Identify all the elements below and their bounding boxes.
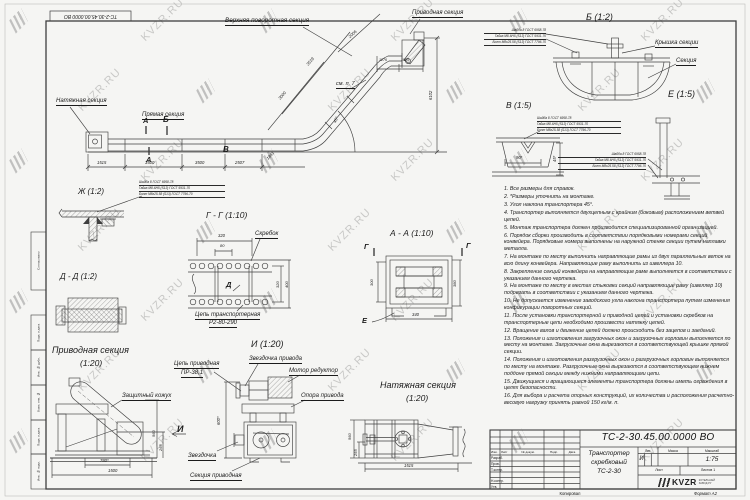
stamp-text: ТС-2-30.45.00.0000 ВО	[64, 13, 117, 19]
dim-1505: 1505	[401, 59, 409, 63]
copied-label: Копировал	[540, 491, 600, 496]
title-block-lit-header: Лит.	[638, 449, 658, 453]
label-drive-chain-2: ПР-38,1	[181, 370, 203, 378]
dim-drive-560: 560	[152, 430, 156, 437]
title-block-role-razrab: Разраб.	[491, 456, 503, 460]
margin-label-inv-dubl: Инв. № дубл.	[31, 350, 46, 385]
label-drive-support: Опора привода	[301, 393, 344, 401]
marker-g-left: Г	[364, 243, 369, 251]
marker-e: Е	[362, 317, 367, 325]
dim-6102: 6102	[429, 91, 433, 100]
note-item: 2. *Размеры уточнить на монтаже.	[504, 194, 735, 201]
dim-1500: 1500	[108, 469, 117, 473]
view-title-zh: Ж (1:2)	[78, 188, 104, 196]
label-see-note-7: см. п. 7	[336, 82, 355, 89]
title-block-col-doc: № докум.	[512, 450, 544, 454]
note-item: 14. Положения и изготовления разгрузочны…	[504, 357, 735, 377]
dim-1515: 1515	[97, 161, 106, 165]
view-v-linework	[492, 131, 564, 176]
kvzr-logo-text: KVZR	[672, 477, 697, 487]
title-block-col-sign: Подп.	[544, 450, 564, 454]
view-title-gg: Г - Г (1:10)	[206, 211, 247, 220]
dim-aa-300: 300	[370, 279, 374, 286]
view-title-aa: А - А (1:10)	[390, 229, 433, 238]
note-item: 4. Транспортер выполняется двухцепным с …	[504, 210, 735, 224]
fastener-callout-v: Шайба 8 ГОСТ 6958-78 Гайка М8-6Н5 (S13) …	[537, 116, 621, 134]
dim-90: 90*	[516, 156, 522, 160]
note-item: 15. Движущиеся и вращающиеся элементы тр…	[504, 379, 735, 393]
note-item: 3. Угол наклона транспортера 45°.	[504, 202, 735, 209]
dim-tension-1515: 1515	[404, 464, 413, 468]
fastener-line: Болт М8х25.58 (S13) ГОСТ 7796-70	[537, 128, 621, 134]
note-item: 5. Монтаж транспортера должен производит…	[504, 225, 735, 232]
view-title-dd: Д - Д (1:2)	[60, 273, 97, 281]
dim-1276: 1276	[379, 59, 387, 63]
section-mark-a-top: А	[143, 117, 148, 125]
title-block-scale-value: 1:75	[688, 456, 736, 463]
dim-drive-265: 265	[159, 444, 163, 451]
dim-gg-400: 400	[285, 281, 289, 288]
dim-gg-80: 80	[220, 244, 224, 248]
title-block-lit-value: И	[637, 456, 646, 462]
format-label: Формат А2	[694, 491, 717, 496]
margin-label-vzam-inv: Взам. инв. №	[31, 385, 46, 420]
title-block-scale-header: Масштаб	[688, 449, 736, 453]
dim-aa-340: 340	[412, 313, 419, 317]
dim-gg-320-right: 320	[276, 281, 280, 288]
note-item: 10. Не допускается изменение заводского …	[504, 298, 735, 312]
note-item: 16. Для выбора и расчета опорных констру…	[504, 393, 735, 407]
note-item: 13. Положения и изготовления загрузочных…	[504, 336, 735, 356]
margin-label-podp-data-1: Подп. и дата	[31, 315, 46, 350]
note-item: 9. На монтаже по месту в местах стыковки…	[504, 283, 735, 297]
note-item: 1. Все размеры для справок.	[504, 186, 735, 193]
title-block-role-utv: Утв.	[491, 485, 497, 489]
title-block-role-tkontr: Т.контр.	[491, 468, 503, 472]
marker-d: Д	[226, 281, 231, 289]
title-block-sheet-label: Лист	[638, 468, 680, 472]
view-title-tension-section: Натяжная секция	[380, 381, 456, 390]
margin-label-inv-podl: Инв. № подл.	[31, 454, 46, 489]
dim-3500-1: 3500	[145, 161, 154, 165]
company-logo: KVZR КОТЕЛЬНЫЙ ЗАВОД.РУ	[640, 476, 734, 488]
title-block-role-nkontr: Н.контр.	[491, 479, 504, 483]
view-title-b: Б (1:2)	[586, 13, 613, 22]
fastener-line: Болт М8х25.58 (S13) ГОСТ 7796-70	[139, 192, 225, 198]
label-tension-section: Натяжная секция	[56, 98, 107, 106]
title-block-doc-number: ТС-2-30.45.00.0000 ВО	[581, 432, 735, 443]
label-sprocket: Звездочка	[188, 453, 216, 461]
dim-2507: 2507	[235, 161, 244, 165]
view-mark-i: И	[177, 425, 183, 434]
fastener-callout-b: Шайба 8 ГОСТ 6958-78 Гайка М8-6Н5 (S13) …	[484, 28, 546, 46]
rotated-doc-number-stamp: ТС-2-30.45.00.0000 ВО	[50, 11, 131, 21]
title-block-name-1: Транспортер	[580, 450, 638, 457]
main-assembly-linework	[70, 14, 447, 171]
title-block-mass-header: Масса	[658, 449, 688, 453]
kvzr-logo-subtext: КОТЕЛЬНЫЙ ЗАВОД.РУ	[699, 479, 715, 485]
dim-tension-560: 560	[348, 433, 352, 440]
dim-gg-320-top: 320	[218, 234, 225, 238]
view-title-e: Е (1:5)	[668, 90, 695, 99]
label-protective-guard: Защитный кожух	[122, 393, 171, 401]
dim-780: 780*	[100, 459, 109, 463]
label-drive-chain-1: Цепь приводная	[174, 361, 219, 369]
fastener-line: Болт М8х25.58 (S13) ГОСТ 7796-70	[558, 164, 646, 170]
dim-45: 45*	[553, 156, 557, 162]
kvzr-logo-subline-2: ЗАВОД.РУ	[699, 482, 715, 485]
label-section: Секция	[676, 58, 696, 66]
note-item: 7. На монтаже по месту выполнить направл…	[504, 254, 735, 268]
title-block-col-list: Лист	[501, 450, 508, 454]
title-block-sheets-label: Листов 1	[680, 468, 736, 472]
note-item: 8. Закрепление секций конвейера на напра…	[504, 269, 735, 283]
view-title-drive-scale: (1:20)	[80, 359, 102, 368]
title-block-col-date: Дата	[564, 450, 580, 454]
label-drive-sprocket: Звездочка привода	[249, 356, 302, 364]
label-drive-section: Приводная секция	[412, 10, 463, 18]
fastener-callout-zh: Шайба 8 ГОСТ 6958-78 Гайка М8-6Н5 (S13) …	[139, 180, 225, 198]
technical-notes: 1. Все размеры для справок. 2. *Размеры …	[504, 186, 735, 408]
title-block-col-izm: Изм.	[491, 450, 497, 454]
view-gg-linework	[188, 238, 291, 311]
kvzr-hatch-icon	[658, 478, 671, 487]
view-title-tension-scale: (1:20)	[406, 394, 428, 403]
title-block-role-prov: Пров.	[491, 462, 500, 466]
margin-label-podp-data-2: Подп. и дата	[31, 420, 46, 454]
dim-600: 600*	[217, 416, 221, 425]
dim-aa-380: 380	[453, 280, 457, 287]
view-dd-linework	[56, 298, 126, 332]
view-i-linework	[214, 364, 305, 471]
dim-tension-255: 255	[354, 449, 358, 456]
title-block-name-3: ТС-2-30	[580, 468, 638, 475]
view-title-drive-section: Приводная секция	[52, 346, 129, 355]
title-block-name-2: скребковый	[580, 459, 638, 466]
label-conveyor-chain-1: Цепь транспортерная	[195, 312, 260, 320]
view-mark-b: Б	[163, 116, 169, 124]
label-upper-turn-section: Верхняя поворотная секция	[225, 18, 309, 26]
view-title-i: И (1:20)	[251, 340, 283, 349]
fastener-line: Болт М8х25.58 (S13) ГОСТ 7796-70	[484, 40, 546, 46]
label-conveyor-chain-2: Р2-80-290	[209, 320, 237, 328]
marker-g-right: Г	[466, 242, 471, 250]
note-item: 12. Вращение валов и движение цепей долж…	[504, 328, 735, 335]
label-scraper: Скребок	[255, 231, 278, 239]
note-item: 11. После установки транспортерной и при…	[504, 313, 735, 327]
margin-label-soglasovano: Согласовано	[31, 232, 46, 290]
fastener-callout-e: Шайба 8 ГОСТ 6958-78 Гайка М8-6Н5 (S13) …	[558, 152, 646, 170]
view-zh-linework	[59, 196, 142, 241]
view-mark-v: В	[223, 146, 229, 154]
view-title-v: В (1:5)	[506, 101, 532, 110]
dim-3500-2: 3500	[195, 161, 204, 165]
label-section-cover: Крышка секции	[655, 40, 698, 48]
note-item: 6. Порядок сборки производить в соответс…	[504, 233, 735, 253]
label-drive-section-part: Секция приводная	[190, 473, 242, 481]
view-aa-linework	[372, 248, 462, 322]
label-motor-reducer: Мотор редуктор	[289, 368, 338, 376]
drawing-sheet: KVZR.RUKVZR.RUKVZR.RUKVZR.RUKVZR.RUKVZR.…	[0, 0, 750, 500]
